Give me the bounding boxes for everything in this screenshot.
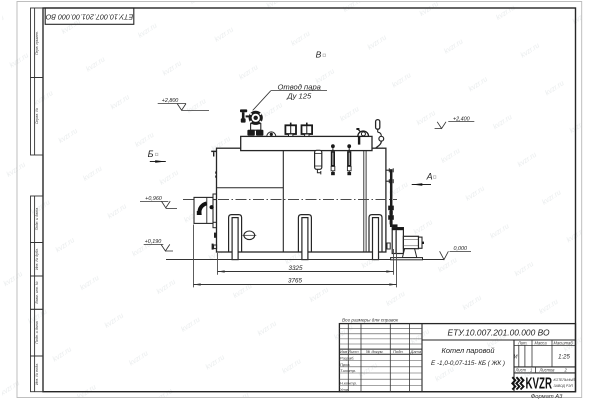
- svg-text:Инв. № дубл.: Инв. № дубл.: [35, 248, 39, 270]
- svg-text:В: В: [316, 50, 322, 60]
- svg-text:Б: Б: [148, 149, 154, 159]
- svg-text:Взам. инв. №: Взам. инв. №: [35, 281, 39, 303]
- svg-text:№ докум.: № докум.: [366, 349, 384, 354]
- svg-text:Е -1,0-0,07-115- КБ ( ЖК ): Е -1,0-0,07-115- КБ ( ЖК ): [431, 360, 505, 367]
- svg-text:Перв. примен.: Перв. примен.: [35, 31, 39, 55]
- svg-text:Подп. и дата: Подп. и дата: [35, 208, 39, 231]
- svg-text:Утв.: Утв.: [340, 387, 349, 392]
- svg-text:Подп. и дата: Подп. и дата: [35, 321, 39, 344]
- svg-text:И: И: [514, 355, 518, 361]
- svg-text:А: А: [426, 171, 433, 181]
- svg-text:Масштаб: Масштаб: [554, 340, 574, 345]
- svg-text:Масса: Масса: [535, 340, 548, 345]
- svg-text:Разраб.: Разраб.: [340, 355, 354, 360]
- svg-text:ЗАВОД РЭП: ЗАВОД РЭП: [554, 384, 574, 388]
- svg-text:Лит.: Лит.: [517, 340, 528, 345]
- svg-text:+0,960: +0,960: [145, 196, 162, 202]
- svg-text:Т.контр.: Т.контр.: [340, 368, 356, 373]
- svg-text:Инв. № подл.: Инв. № подл.: [35, 363, 39, 385]
- svg-text:1:25: 1:25: [558, 355, 570, 361]
- svg-text:1: 1: [530, 368, 532, 373]
- svg-text:Все размеры для справок: Все размеры для справок: [342, 318, 399, 323]
- svg-text:Котел паровой: Котел паровой: [441, 346, 494, 355]
- svg-text:Дата: Дата: [410, 349, 422, 354]
- svg-text:Пров.: Пров.: [340, 362, 351, 367]
- svg-text:Ду 125: Ду 125: [286, 92, 312, 101]
- svg-text:ЕТУ.10.007.201.00.000 ВО: ЕТУ.10.007.201.00.000 ВО: [448, 327, 550, 337]
- svg-text:Изм Лист: Изм Лист: [340, 349, 359, 354]
- svg-text:ЕТУ.10.007.201.00.000 ВО: ЕТУ.10.007.201.00.000 ВО: [45, 12, 133, 21]
- svg-text:Отвод пара: Отвод пара: [277, 82, 320, 91]
- svg-text:КОТЕЛЬНЫЙ: КОТЕЛЬНЫЙ: [554, 378, 576, 382]
- svg-text:KVZR: KVZR: [526, 376, 553, 393]
- svg-text:Справ. №: Справ. №: [35, 108, 39, 124]
- svg-text:Подп.: Подп.: [393, 349, 404, 354]
- svg-text:Листов: Листов: [539, 368, 556, 373]
- svg-text:Формат А3: Формат А3: [531, 394, 563, 400]
- svg-text:3765: 3765: [288, 278, 303, 285]
- svg-text:3325: 3325: [288, 265, 303, 272]
- svg-text:Лист: Лист: [515, 368, 527, 373]
- svg-text:Н.контр.: Н.контр.: [340, 381, 357, 386]
